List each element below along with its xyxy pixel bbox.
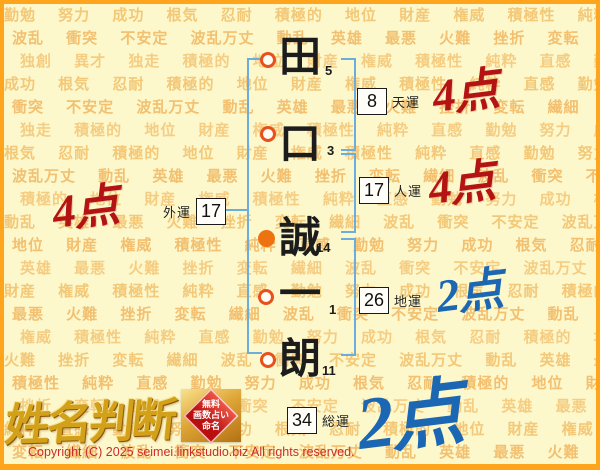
chiun-value: 26	[359, 287, 389, 314]
circle-mark-filled-icon	[258, 230, 275, 247]
soun-group: 34 総運	[287, 407, 350, 434]
stroke-count-4: 1	[329, 302, 336, 317]
soun-value: 34	[287, 407, 317, 434]
tenun-value: 8	[357, 88, 387, 115]
free-naming-badge[interactable]: 無料 画数占い 命名	[181, 389, 241, 442]
chiun-bracket	[341, 238, 356, 356]
stroke-count-5: 11	[322, 363, 336, 378]
chiun-group: 26 地運	[359, 287, 422, 314]
badge-line-1: 無料	[202, 399, 220, 410]
badge-line-2: 画数占い	[193, 410, 229, 421]
jinun-group: 17 人運	[359, 177, 422, 204]
name-char-4: 一	[274, 273, 326, 317]
name-char-1: 田	[274, 36, 326, 80]
gaiun-label: 外運	[163, 202, 191, 221]
circle-mark-icon	[258, 289, 274, 305]
name-char-2: 口	[274, 123, 326, 167]
copyright-text: Copyright (C) 2025 seimei.linkstudio.biz…	[28, 445, 355, 459]
stroke-count-1: 5	[325, 63, 332, 78]
site-logo[interactable]: 姓名判断	[2, 383, 178, 454]
jinun-label: 人運	[394, 181, 422, 200]
gaiun-value: 17	[196, 198, 226, 225]
soun-label: 総運	[322, 411, 350, 430]
jinun-value: 17	[359, 177, 389, 204]
jinun-score: 4点	[424, 144, 497, 217]
gaiun-score: 4点	[48, 168, 121, 241]
gaiun-bracket	[247, 58, 262, 354]
tenun-score: 4点	[428, 52, 501, 125]
circle-mark-icon	[260, 52, 276, 68]
seimei-handan-result-page: 勤勉 努力 成功 根気 忍耐 積極的 地位 財産 権威 積極性 純粋 直感 勤勉…	[0, 0, 600, 470]
jinun-bracket	[341, 153, 356, 233]
badge-line-3: 命名	[202, 421, 220, 432]
name-char-5: 朗	[274, 338, 326, 382]
tenun-bracket	[341, 58, 356, 151]
stroke-count-3: 14	[316, 240, 330, 255]
tenun-group: 8 天運	[357, 88, 420, 115]
chiun-score: 2点	[432, 252, 505, 325]
chiun-label: 地運	[394, 291, 422, 310]
circle-mark-icon	[260, 352, 276, 368]
circle-mark-icon	[260, 126, 276, 142]
tenun-label: 天運	[392, 92, 420, 111]
stroke-count-2: 3	[327, 143, 334, 158]
gaiun-group: 外運 17	[163, 198, 226, 225]
soun-score: 2点	[350, 352, 465, 470]
